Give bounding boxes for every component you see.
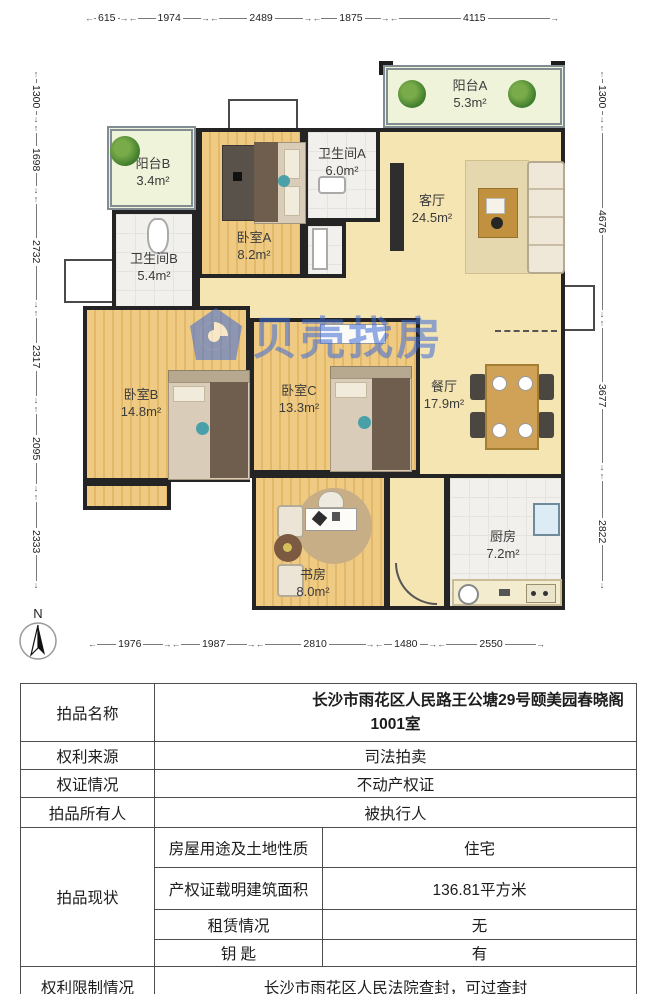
page: ←615→←1974→←2489→←1875→←4115→ ←1976→←198… bbox=[0, 0, 648, 994]
dining-chair bbox=[470, 374, 486, 400]
key-value: 有 bbox=[323, 940, 637, 967]
washbasin bbox=[312, 228, 328, 270]
auction-info-table: 拍品名称 长沙市雨花区人民路王公塘29号颐美园春晓阁1001室 权利来源 司法拍… bbox=[20, 683, 637, 994]
dresser bbox=[320, 324, 386, 344]
dimension-segment: ←1987→ bbox=[172, 636, 256, 652]
auction-name-label: 拍品名称 bbox=[21, 684, 155, 742]
room-bedroom-b-ext bbox=[83, 482, 171, 510]
room-label-kitchen: 厨房7.2m² bbox=[486, 529, 519, 563]
table-row: 拍品所有人 被执行人 bbox=[21, 798, 637, 828]
area-label: 产权证载明建筑面积 bbox=[155, 868, 323, 910]
dimension-segment: ↑4676↓ bbox=[594, 124, 610, 319]
plant-icon bbox=[110, 136, 140, 166]
table-row: 权利限制情况 长沙市雨花区人民法院查封，可过查封 bbox=[21, 967, 637, 994]
curtain-rail bbox=[495, 330, 557, 332]
sofa bbox=[527, 161, 565, 274]
tv-wall bbox=[390, 163, 404, 251]
toilet bbox=[147, 218, 169, 254]
restriction-value: 长沙市雨花区人民法院查封，可过查封 bbox=[155, 967, 637, 994]
dining-table bbox=[485, 364, 539, 450]
room-label-dining: 餐厅17.9m² bbox=[424, 379, 464, 413]
dimension-segment: ←2810→ bbox=[256, 636, 375, 652]
left-window bbox=[64, 259, 114, 303]
dimension-segment: ↑1300↓ bbox=[594, 70, 610, 124]
table-row: 权利来源 司法拍卖 bbox=[21, 742, 637, 770]
dimension-segment: ←1976→ bbox=[88, 636, 172, 652]
cert-status-label: 权证情况 bbox=[21, 770, 155, 798]
table-row: 拍品现状 房屋用途及土地性质 住宅 bbox=[21, 828, 637, 868]
dining-chair bbox=[538, 412, 554, 438]
dimensions-top: ←615→←1974→←2489→←1875→←4115→ bbox=[85, 10, 559, 26]
room-label-study: 书房8.0m² bbox=[296, 567, 329, 601]
dimension-segment: ←1974→ bbox=[129, 10, 210, 26]
dining-chair bbox=[538, 374, 554, 400]
room-label-living: 客厅24.5m² bbox=[412, 193, 452, 227]
dimension-segment: ↑1698↓ bbox=[28, 124, 44, 195]
dimension-segment: ←1480→ bbox=[375, 636, 438, 652]
fridge bbox=[533, 503, 560, 536]
room-label-balcony-a: 阳台A5.3m² bbox=[453, 78, 488, 112]
dimension-segment: ↑2732↓ bbox=[28, 195, 44, 309]
dimension-segment: ←1875→ bbox=[312, 10, 389, 26]
rights-source-value: 司法拍卖 bbox=[155, 742, 637, 770]
dimension-segment: ↑1300↓ bbox=[28, 70, 44, 124]
auction-name-value: 长沙市雨花区人民路王公塘29号颐美园春晓阁1001室 bbox=[155, 684, 637, 742]
table-row: 拍品名称 长沙市雨花区人民路王公塘29号颐美园春晓阁1001室 bbox=[21, 684, 637, 742]
plant-icon bbox=[508, 80, 536, 108]
desk bbox=[305, 508, 357, 531]
dimension-segment: ←615→ bbox=[85, 10, 129, 26]
room-label-bedroom-b: 卧室B14.8m² bbox=[121, 387, 161, 421]
cert-status-value: 不动产权证 bbox=[155, 770, 637, 798]
owner-value: 被执行人 bbox=[155, 798, 637, 828]
restriction-label: 权利限制情况 bbox=[21, 967, 155, 994]
floor-plan: ←615→←1974→←2489→←1875→←4115→ ←1976→←198… bbox=[0, 0, 648, 680]
compass: N bbox=[16, 606, 60, 666]
bed bbox=[330, 366, 410, 470]
reading-lamp bbox=[318, 491, 344, 508]
study-chair bbox=[277, 505, 304, 538]
usage-label: 房屋用途及土地性质 bbox=[155, 828, 323, 868]
bed bbox=[168, 370, 248, 478]
dimensions-right: ↑1300↓↑4676↓↑3677↓↑2822↓ bbox=[594, 70, 610, 590]
key-label: 钥 匙 bbox=[155, 940, 323, 967]
usage-value: 住宅 bbox=[323, 828, 637, 868]
bed bbox=[222, 142, 304, 222]
current-status-label: 拍品现状 bbox=[21, 828, 155, 967]
lease-label: 租赁情况 bbox=[155, 910, 323, 940]
dimension-segment: ↑3677↓ bbox=[594, 319, 610, 472]
compass-needle-icon bbox=[18, 621, 58, 661]
dimension-segment: ←4115→ bbox=[390, 10, 559, 26]
plant-icon bbox=[398, 80, 426, 108]
dimension-segment: ←2489→ bbox=[210, 10, 313, 26]
dimension-segment: ↑2822↓ bbox=[594, 472, 610, 590]
side-table bbox=[274, 534, 302, 562]
lease-value: 无 bbox=[323, 910, 637, 940]
dimensions-bottom: ←1976→←1987→←2810→←1480→←2550→ bbox=[88, 636, 545, 652]
room-label-bedroom-c: 卧室C13.3m² bbox=[279, 383, 319, 417]
room-label-bedroom-a: 卧室A8.2m² bbox=[237, 230, 272, 264]
room-label-bath-b: 卫生间B5.4m² bbox=[130, 251, 178, 285]
dimension-segment: ↑2095↓ bbox=[28, 405, 44, 492]
rights-source-label: 权利来源 bbox=[21, 742, 155, 770]
room-label-bath-a: 卫生间A6.0m² bbox=[318, 146, 366, 180]
bay-window bbox=[228, 99, 298, 130]
dining-chair bbox=[470, 412, 486, 438]
dimensions-left: ↑1300↓↑1698↓↑2732↓↑2317↓↑2095↓↑2333↓ bbox=[28, 70, 44, 590]
dimension-segment: ↑2333↓ bbox=[28, 493, 44, 590]
table-row: 权证情况 不动产权证 bbox=[21, 770, 637, 798]
room-label-balcony-b: 阳台B3.4m² bbox=[136, 156, 171, 190]
owner-label: 拍品所有人 bbox=[21, 798, 155, 828]
dimension-segment: ↑2317↓ bbox=[28, 309, 44, 406]
area-value: 136.81平方米 bbox=[323, 868, 637, 910]
dimension-segment: ←2550→ bbox=[437, 636, 545, 652]
compass-n-label: N bbox=[16, 606, 60, 621]
kitchen-counter bbox=[452, 579, 562, 606]
coffee-table bbox=[478, 188, 518, 238]
